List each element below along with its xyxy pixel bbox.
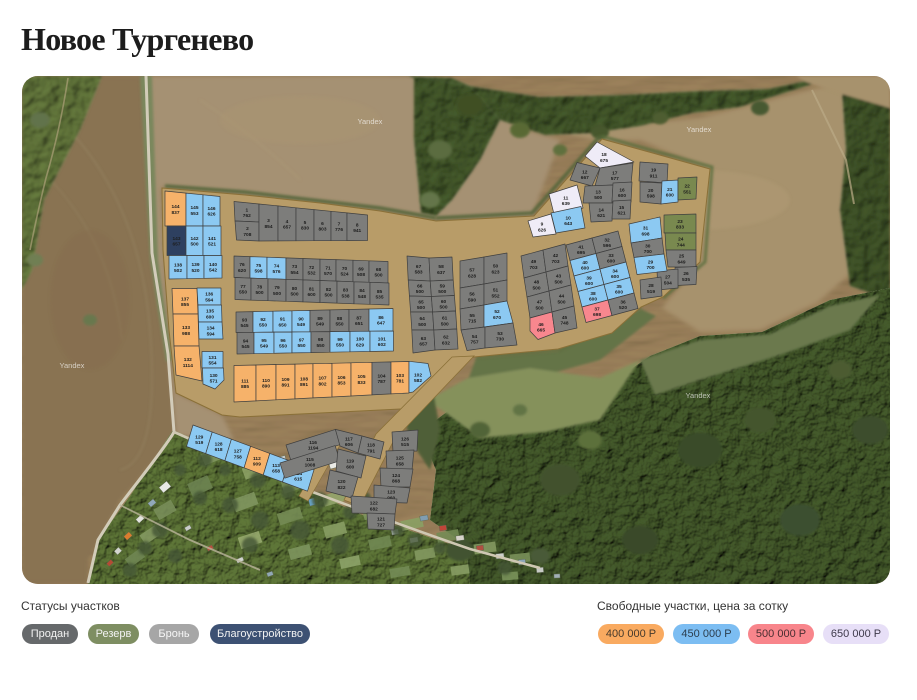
svg-text:623: 623 [491,269,499,275]
svg-text:1194: 1194 [308,446,319,452]
svg-text:103: 103 [396,373,404,379]
svg-text:554: 554 [290,270,298,276]
svg-text:111: 111 [241,379,249,385]
svg-text:104: 104 [377,373,385,379]
svg-text:500: 500 [290,291,298,297]
svg-text:643: 643 [564,221,572,227]
svg-text:500: 500 [324,293,332,299]
svg-text:18: 18 [601,152,607,158]
svg-text:598: 598 [254,268,262,274]
svg-text:620: 620 [238,268,246,274]
svg-text:626: 626 [207,212,215,218]
svg-text:830: 830 [301,226,309,232]
svg-text:500: 500 [438,289,446,295]
svg-text:708: 708 [243,232,251,238]
svg-text:9: 9 [541,222,544,228]
svg-text:590: 590 [468,297,476,303]
svg-text:822: 822 [337,485,345,491]
svg-text:89: 89 [317,316,323,322]
svg-text:16: 16 [619,187,625,193]
svg-text:657: 657 [172,242,180,248]
svg-text:83: 83 [343,288,349,294]
svg-text:85: 85 [377,289,383,295]
svg-text:63: 63 [421,336,427,342]
svg-text:67: 67 [416,264,422,270]
svg-text:626: 626 [538,227,546,233]
svg-text:911: 911 [650,173,658,179]
svg-text:126: 126 [401,436,409,442]
svg-text:500: 500 [439,305,447,311]
svg-text:941: 941 [353,228,361,234]
svg-text:23: 23 [677,219,683,225]
svg-text:86: 86 [378,315,384,321]
svg-text:Yandex: Yandex [687,125,712,134]
svg-text:137: 137 [181,296,189,302]
svg-text:885: 885 [241,384,249,390]
svg-text:521: 521 [208,242,216,248]
svg-text:133: 133 [182,325,190,331]
svg-text:4: 4 [286,219,289,225]
svg-text:542: 542 [209,268,217,274]
svg-text:Yandex: Yandex [358,117,383,126]
svg-text:92: 92 [260,317,266,323]
svg-text:550: 550 [316,343,324,349]
svg-text:41: 41 [578,244,584,250]
svg-text:658: 658 [396,461,404,467]
svg-text:47: 47 [537,300,543,306]
svg-text:598: 598 [647,194,655,200]
svg-text:615: 615 [294,477,302,483]
svg-text:97: 97 [299,338,305,344]
svg-text:833: 833 [357,380,365,386]
svg-text:124: 124 [392,473,400,479]
svg-text:500: 500 [532,285,540,291]
svg-text:75: 75 [256,263,262,269]
svg-text:129: 129 [195,435,203,441]
svg-text:577: 577 [611,176,619,182]
svg-text:651: 651 [355,321,363,327]
svg-text:600: 600 [618,193,626,199]
svg-text:600: 600 [589,297,597,303]
svg-text:140: 140 [209,262,217,268]
svg-text:93: 93 [242,317,248,323]
svg-text:545: 545 [240,323,248,329]
svg-text:535: 535 [375,294,383,300]
svg-text:73: 73 [292,264,298,270]
svg-text:123: 123 [387,490,395,496]
svg-text:144: 144 [171,204,179,210]
svg-text:637: 637 [437,270,445,276]
svg-text:524: 524 [340,272,348,278]
svg-text:781: 781 [396,378,404,384]
svg-text:776: 776 [335,227,343,233]
svg-text:658: 658 [272,469,280,475]
svg-text:500: 500 [594,195,602,201]
svg-text:582: 582 [414,378,422,384]
svg-text:99: 99 [337,337,343,343]
svg-text:545: 545 [241,344,249,350]
svg-text:88: 88 [337,316,343,322]
svg-text:36: 36 [620,299,626,305]
svg-text:80: 80 [292,286,298,292]
svg-text:596: 596 [603,243,611,249]
svg-text:24: 24 [678,237,684,243]
svg-text:853: 853 [337,381,345,387]
svg-text:90: 90 [298,316,304,322]
svg-text:135: 135 [206,309,214,315]
svg-text:122: 122 [370,501,378,507]
svg-text:520: 520 [619,305,627,311]
svg-text:117: 117 [345,436,353,442]
svg-text:600: 600 [611,274,619,280]
svg-text:6: 6 [321,221,324,227]
svg-text:606: 606 [345,442,353,448]
svg-text:82: 82 [326,287,332,293]
svg-text:550: 550 [279,343,287,349]
svg-text:744: 744 [677,242,685,248]
svg-text:28: 28 [648,283,654,289]
svg-text:136: 136 [205,292,213,298]
svg-text:50: 50 [493,264,499,270]
svg-text:855: 855 [181,302,189,308]
svg-text:670: 670 [493,315,501,321]
svg-text:27: 27 [665,275,671,281]
svg-text:551: 551 [683,189,691,195]
svg-text:508: 508 [357,272,365,278]
svg-text:65: 65 [418,299,424,305]
svg-text:532: 532 [307,270,315,276]
svg-text:35: 35 [616,284,622,290]
svg-text:576: 576 [272,269,280,275]
svg-text:11: 11 [563,195,568,201]
svg-text:33: 33 [608,253,614,259]
svg-text:69: 69 [358,267,364,273]
svg-text:504: 504 [664,280,672,286]
svg-text:72: 72 [309,265,315,271]
svg-text:118: 118 [367,443,375,449]
svg-text:632: 632 [442,340,450,346]
svg-text:657: 657 [283,225,291,231]
svg-text:52: 52 [494,309,500,315]
svg-text:61: 61 [442,316,448,322]
svg-text:621: 621 [597,213,605,219]
svg-text:125: 125 [396,456,404,462]
svg-text:22: 22 [685,184,691,190]
svg-text:502: 502 [174,268,182,274]
svg-text:748: 748 [560,321,568,327]
svg-text:550: 550 [259,323,267,329]
svg-text:665: 665 [537,328,545,334]
svg-text:500: 500 [416,289,424,295]
svg-text:3: 3 [267,218,270,224]
svg-text:762: 762 [243,213,251,219]
svg-text:550: 550 [335,321,343,327]
svg-text:109: 109 [281,377,289,383]
svg-text:500: 500 [255,290,263,296]
svg-text:142: 142 [190,236,198,242]
svg-text:17: 17 [612,170,618,176]
svg-text:802: 802 [318,381,326,387]
svg-text:113: 113 [272,463,280,469]
svg-text:131: 131 [208,355,216,361]
svg-text:14: 14 [599,207,605,213]
svg-text:570: 570 [324,271,332,277]
svg-text:700: 700 [646,265,654,271]
svg-text:500: 500 [535,305,543,311]
svg-text:657: 657 [419,342,427,348]
svg-text:143: 143 [172,236,180,242]
svg-text:44: 44 [559,294,565,300]
svg-text:98: 98 [318,337,324,343]
svg-text:500: 500 [557,299,565,305]
svg-text:25: 25 [679,254,685,260]
svg-text:500: 500 [554,279,562,285]
svg-text:891: 891 [300,382,308,388]
svg-text:15: 15 [619,205,625,211]
svg-text:682: 682 [370,506,378,512]
svg-text:833: 833 [676,225,684,231]
svg-text:94: 94 [243,338,249,344]
svg-text:909: 909 [253,461,261,467]
svg-text:128: 128 [215,442,223,448]
svg-text:803: 803 [318,226,326,232]
svg-text:13: 13 [596,189,602,195]
svg-text:727: 727 [377,522,385,528]
svg-text:55: 55 [470,313,476,319]
svg-text:500: 500 [190,242,198,248]
svg-text:854: 854 [264,224,272,230]
svg-text:19: 19 [651,168,657,174]
svg-text:5: 5 [304,220,307,226]
svg-text:12: 12 [582,169,588,175]
svg-text:868: 868 [392,479,400,485]
svg-text:20: 20 [648,188,654,194]
svg-text:146: 146 [207,206,215,212]
svg-text:715: 715 [468,319,476,325]
svg-text:549: 549 [316,322,324,328]
svg-text:600: 600 [581,266,589,272]
svg-text:Yandex: Yandex [60,361,85,370]
svg-text:890: 890 [262,383,270,389]
svg-text:119: 119 [346,459,354,465]
svg-text:538: 538 [341,293,349,299]
svg-text:139: 139 [191,262,199,268]
svg-text:95: 95 [261,338,267,344]
svg-text:38: 38 [590,291,596,297]
svg-text:54: 54 [472,334,478,340]
svg-text:45: 45 [562,315,568,321]
svg-text:550: 550 [336,343,344,349]
svg-text:138: 138 [174,262,182,268]
svg-text:145: 145 [190,205,198,211]
svg-text:76: 76 [239,262,245,268]
svg-text:7: 7 [338,222,341,228]
svg-text:1: 1 [245,207,248,213]
svg-text:96: 96 [280,338,286,344]
svg-text:30: 30 [645,243,651,249]
svg-text:60: 60 [441,299,447,305]
svg-text:703: 703 [529,265,537,271]
svg-text:548: 548 [358,294,366,300]
svg-text:107: 107 [318,376,326,382]
svg-text:703: 703 [551,259,559,265]
svg-text:758: 758 [234,454,242,460]
svg-text:116: 116 [309,440,317,446]
svg-text:628: 628 [468,273,476,279]
svg-text:988: 988 [182,331,190,337]
svg-text:84: 84 [359,288,365,294]
svg-text:621: 621 [617,211,625,217]
svg-text:132: 132 [184,357,192,363]
svg-text:550: 550 [239,290,247,296]
svg-text:649: 649 [677,259,685,265]
svg-text:110: 110 [262,378,270,384]
svg-text:105: 105 [357,374,365,380]
svg-text:600: 600 [585,281,593,287]
svg-text:37: 37 [594,306,600,312]
svg-text:40: 40 [582,260,588,266]
svg-text:62: 62 [443,335,449,341]
svg-text:500: 500 [418,322,426,328]
svg-text:698: 698 [593,312,601,318]
svg-text:70: 70 [342,266,348,272]
svg-text:100: 100 [356,337,364,343]
svg-text:66: 66 [417,284,423,290]
svg-text:68: 68 [376,267,382,273]
svg-text:10: 10 [566,215,572,221]
svg-text:500: 500 [441,321,449,327]
svg-text:602: 602 [378,342,386,348]
svg-text:791: 791 [367,448,375,454]
svg-text:101: 101 [378,336,386,342]
svg-text:77: 77 [240,284,246,290]
svg-text:79: 79 [274,285,280,291]
svg-text:2: 2 [246,226,249,232]
svg-text:102: 102 [414,372,422,378]
svg-text:48: 48 [534,280,540,286]
svg-text:600: 600 [615,290,623,296]
svg-text:519: 519 [647,289,655,295]
svg-text:51: 51 [493,288,499,294]
svg-text:552: 552 [491,293,499,299]
svg-text:571: 571 [210,379,218,385]
svg-text:39: 39 [586,275,592,281]
svg-text:667: 667 [581,175,589,181]
svg-text:647: 647 [377,321,385,327]
svg-text:81: 81 [309,286,315,292]
svg-text:53: 53 [497,331,503,337]
svg-text:500: 500 [417,305,425,311]
svg-text:59: 59 [440,283,446,289]
svg-text:29: 29 [648,259,654,265]
svg-text:787: 787 [377,379,385,385]
svg-text:31: 31 [643,226,649,232]
svg-text:549: 549 [297,322,305,328]
svg-text:Yandex: Yandex [686,391,711,400]
svg-text:121: 121 [377,517,385,523]
svg-text:600: 600 [346,464,354,470]
svg-text:8: 8 [356,222,359,228]
svg-text:64: 64 [420,316,426,322]
svg-text:127: 127 [234,449,242,455]
svg-text:78: 78 [257,285,263,291]
svg-text:500: 500 [273,291,281,297]
svg-text:115: 115 [306,457,314,463]
svg-text:106: 106 [337,375,345,381]
svg-text:87: 87 [356,316,362,322]
svg-text:42: 42 [553,253,559,259]
svg-text:600: 600 [206,314,214,320]
svg-text:594: 594 [207,331,215,337]
svg-text:675: 675 [600,158,608,164]
svg-text:650: 650 [278,322,286,328]
svg-text:837: 837 [171,210,179,216]
svg-text:554: 554 [208,361,216,367]
svg-text:515: 515 [401,442,409,448]
svg-text:618: 618 [215,447,223,453]
svg-text:43: 43 [556,274,562,280]
svg-text:91: 91 [280,317,286,323]
svg-text:594: 594 [205,297,213,303]
svg-text:520: 520 [191,268,199,274]
svg-text:57: 57 [469,268,475,274]
svg-text:500: 500 [374,273,382,279]
svg-text:600: 600 [666,193,674,199]
svg-text:1114: 1114 [183,363,193,369]
svg-text:698: 698 [641,231,649,237]
svg-text:112: 112 [253,456,261,462]
svg-text:891: 891 [281,383,289,389]
svg-text:600: 600 [307,292,315,298]
svg-text:74: 74 [274,264,280,270]
svg-text:49: 49 [531,259,537,265]
svg-text:519: 519 [195,440,203,446]
svg-text:108: 108 [300,376,308,382]
svg-text:583: 583 [415,270,423,276]
svg-text:600: 600 [607,259,615,265]
svg-text:757: 757 [470,340,478,346]
svg-text:639: 639 [562,201,570,207]
svg-text:34: 34 [612,268,618,274]
svg-text:120: 120 [337,479,345,485]
svg-text:695: 695 [577,250,585,256]
svg-text:134: 134 [207,326,215,332]
svg-text:629: 629 [356,342,364,348]
svg-text:535: 535 [682,277,690,283]
svg-text:26: 26 [683,271,689,277]
svg-text:730: 730 [496,337,504,343]
svg-text:130: 130 [210,373,218,379]
svg-text:549: 549 [260,344,268,350]
svg-text:32: 32 [604,237,610,243]
svg-text:1008: 1008 [305,463,316,469]
svg-text:550: 550 [297,343,305,349]
svg-text:700: 700 [644,249,652,255]
svg-text:58: 58 [438,264,444,270]
svg-text:141: 141 [208,236,216,242]
svg-text:71: 71 [325,265,331,271]
svg-text:553: 553 [190,211,198,217]
svg-text:56: 56 [469,292,475,298]
svg-text:21: 21 [667,187,673,193]
svg-text:46: 46 [538,322,544,328]
